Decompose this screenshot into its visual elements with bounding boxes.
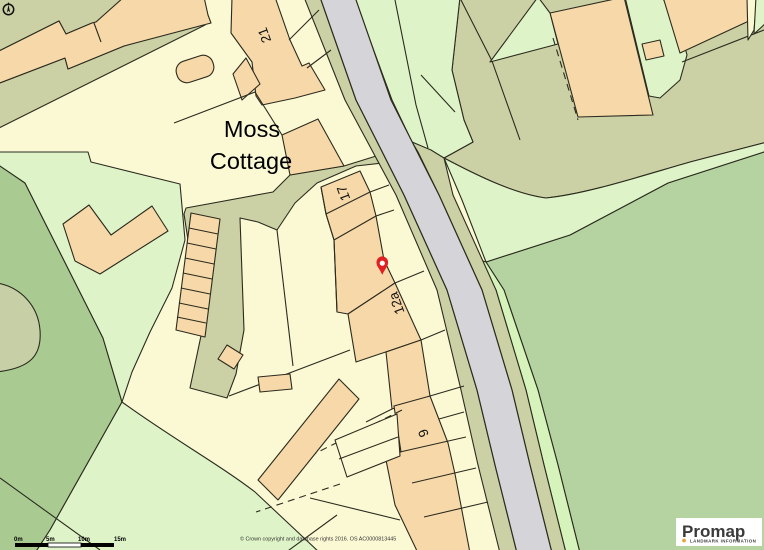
svg-text:15m: 15m <box>114 537 126 543</box>
svg-text:© Crown copyright and database: © Crown copyright and database rights 20… <box>240 536 396 543</box>
svg-text:Moss: Moss <box>224 116 280 142</box>
svg-text:0m: 0m <box>14 537 23 543</box>
svg-text:5m: 5m <box>46 537 55 543</box>
svg-text:Cottage: Cottage <box>210 148 292 174</box>
svg-text:LANDMARK INFORMATION: LANDMARK INFORMATION <box>690 539 756 544</box>
svg-text:10m: 10m <box>78 537 90 543</box>
